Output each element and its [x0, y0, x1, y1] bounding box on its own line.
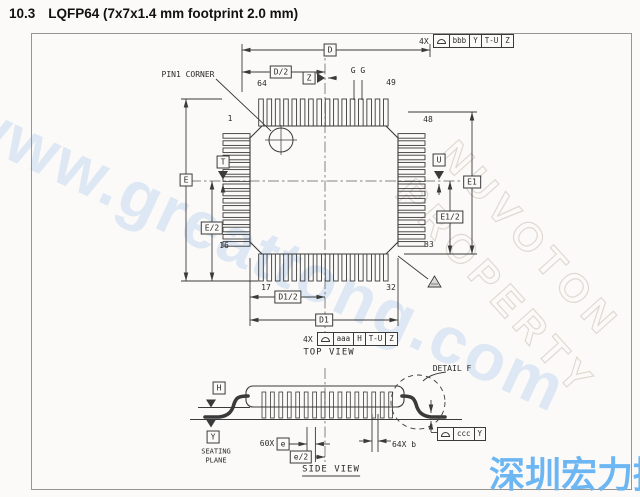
note-flag-icon	[398, 256, 441, 287]
tolerance-side-datum1: Y	[474, 428, 486, 440]
datum-label-Z: Z	[303, 72, 316, 85]
detail-f-label: DETAIL F	[433, 365, 472, 373]
pin-number-1: 1	[228, 115, 233, 123]
left-pin-row	[223, 134, 250, 247]
dim-label-D1: D1	[315, 314, 333, 327]
pin-number-17: 17	[261, 284, 271, 292]
tolerance-bottom-datum2: T-U	[365, 333, 386, 345]
chip-body	[250, 126, 398, 254]
section-title: 10.3LQFP64 (7x7x1.4 mm footprint 2.0 mm)	[9, 6, 298, 21]
datum-h-triangle	[206, 400, 216, 408]
datum-label-Y: Y	[207, 431, 220, 444]
dim-label-D: D	[324, 44, 337, 57]
dim-label-E-half: E/2	[201, 222, 223, 235]
tolerance-top-datum1: Y	[469, 35, 481, 47]
top-pin-row	[259, 99, 388, 126]
datum-label-T: T	[217, 156, 230, 169]
profile-of-surface-icon	[318, 333, 333, 345]
tolerance-bottom-datum1: H	[353, 333, 365, 345]
section-number: 10.3	[9, 6, 35, 21]
dim-label-D1-half: D1/2	[274, 291, 301, 304]
tolerance-frame-bottom: 4X aaa H T-U Z	[303, 332, 398, 346]
watermark-company: 深圳宏力捷	[489, 446, 640, 497]
tolerance-bottom-value: aaa	[333, 333, 354, 345]
section-heading: LQFP64 (7x7x1.4 mm footprint 2.0 mm)	[48, 6, 298, 21]
seating-plane-label-line1: SEATING	[201, 449, 231, 456]
bottom-pin-row	[259, 254, 388, 281]
dim-label-E1: E1	[463, 176, 481, 189]
tolerance-bottom-prefix: 4X	[303, 335, 313, 344]
pin-number-33: 33	[424, 241, 434, 249]
tolerance-frame-side: ccc Y	[437, 427, 486, 441]
pitch-count-label: 60X	[260, 440, 274, 448]
tolerance-top-value: bbb	[449, 35, 470, 47]
pin-number-32: 32	[386, 284, 396, 292]
dimension-lines-left	[181, 99, 258, 281]
centerlines	[190, 44, 466, 462]
dim-label-E: E	[180, 174, 193, 187]
datum-y-triangle	[206, 420, 216, 428]
gauge-label: G G	[351, 67, 365, 75]
datum-t-triangle	[218, 171, 228, 180]
side-view-pins	[262, 392, 393, 418]
dim-label-E1-half: E1/2	[436, 211, 463, 224]
top-view-label: TOP VIEW	[303, 349, 354, 358]
pin-number-48: 48	[423, 116, 433, 124]
pin-number-16: 16	[219, 242, 229, 250]
dim-label-D-half: D/2	[270, 66, 292, 79]
tolerance-top-prefix: 4X	[419, 37, 429, 46]
tolerance-top-datum3: Z	[501, 35, 513, 47]
datasheet-page: www.greattong.com NUVOTON PROPERTY 10.3L…	[0, 0, 640, 497]
tolerance-side-value: ccc	[453, 428, 474, 440]
lead-width-label: 64X b	[392, 441, 416, 449]
tolerance-bottom-datum3: Z	[385, 333, 397, 345]
pin-number-64: 64	[257, 80, 267, 88]
pin-number-49: 49	[386, 79, 396, 87]
profile-of-surface-icon	[434, 35, 449, 47]
profile-of-surface-icon	[438, 428, 453, 440]
datum-z-arrow	[317, 73, 325, 83]
detail-f-circle	[391, 375, 445, 429]
dim-label-e-half: e/2	[290, 451, 312, 464]
dim-label-e: e	[277, 438, 290, 451]
tolerance-top-datum2: T-U	[481, 35, 502, 47]
side-view-label: SIDE VIEW	[302, 466, 360, 477]
datum-label-H: H	[213, 382, 226, 395]
pin1-corner-label: PIN1 CORNER	[162, 71, 215, 79]
tolerance-frame-top: 4X bbb Y T-U Z	[419, 34, 514, 48]
seating-plane-label-line2: PLANE	[205, 458, 226, 465]
package-drawing	[0, 0, 640, 497]
datum-label-U: U	[433, 154, 446, 167]
datum-u-triangle	[434, 171, 444, 180]
right-pin-row	[398, 134, 425, 247]
